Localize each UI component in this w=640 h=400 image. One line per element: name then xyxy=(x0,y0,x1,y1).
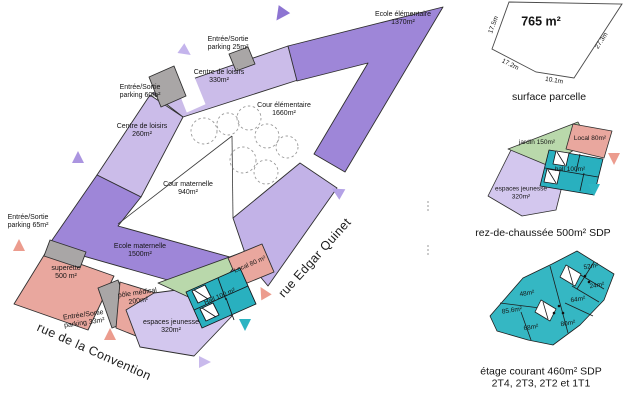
arrow-salmon xyxy=(104,328,116,340)
etage-caption: étage courant 460m² SDP 2T4, 2T3, 2T2 et… xyxy=(480,366,601,391)
label-parking-60: Entrée/Sortieparking 60m² xyxy=(120,84,161,101)
ecole-elementaire-wing xyxy=(288,7,443,172)
label-centre-loisirs-330: Centre de loisirs330m² xyxy=(194,69,245,86)
tree-circle xyxy=(254,160,278,184)
parcel-area: 765 m² xyxy=(521,15,561,30)
label-ecole-elementaire: Ecole élémentaire1370m² xyxy=(375,11,431,28)
arrow-light-purple xyxy=(199,356,211,368)
arrow-purple xyxy=(72,151,84,163)
label-cour-maternelle: Cour maternelle940m² xyxy=(163,181,213,198)
arrow-salmon xyxy=(13,239,25,251)
parcel-caption: surface parcelle xyxy=(512,91,586,103)
arrow-purple xyxy=(271,5,290,24)
label-ecole-maternelle: Ecole maternelle1500m² xyxy=(114,243,166,260)
label-parking-25: Entrée/Sortieparking 25m² xyxy=(208,36,249,53)
arrow-light-purple xyxy=(177,43,194,60)
site-plan-page: Ecole élémentaire1370m² Entrée/Sortiepar… xyxy=(0,0,640,400)
label-parking-65: Entrée/Sortieparking 65m² xyxy=(8,214,49,231)
tree-circle xyxy=(255,124,279,148)
tree-circle xyxy=(276,136,298,158)
label-cour-elementaire: Cour élémentaire1660m² xyxy=(257,102,311,119)
rdc-label-espaces: espaces jeunesse 320m² xyxy=(495,185,547,200)
label-centre-loisirs-260: Centre de loisirs260m² xyxy=(117,123,168,140)
arrow-salmon xyxy=(608,153,620,165)
tree-circle xyxy=(191,118,217,144)
rdc-caption: rez-de-chaussée 500m² SDP xyxy=(475,227,610,239)
tree-circle xyxy=(217,113,239,135)
rdc-label-local: Local 80m² xyxy=(574,135,606,143)
arrow-salmon xyxy=(255,284,271,300)
tree-circle xyxy=(230,147,256,173)
arrow-teal xyxy=(239,319,251,331)
label-espaces-jeunesse: espaces jeunesse320m² xyxy=(143,319,199,336)
label-superette: superette500 m² xyxy=(51,265,80,282)
rdc-label-hall: hall 100m² xyxy=(555,166,585,174)
rdc-label-jardin: jardin 150m² xyxy=(519,139,555,147)
